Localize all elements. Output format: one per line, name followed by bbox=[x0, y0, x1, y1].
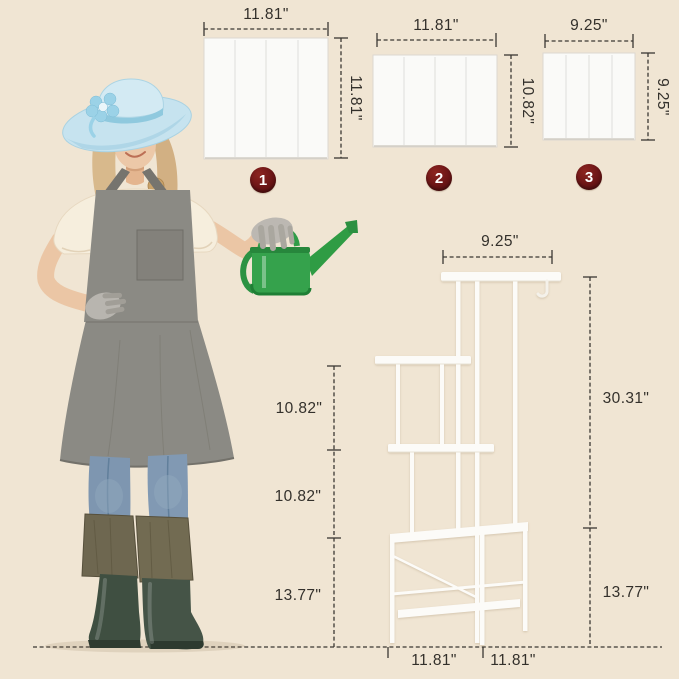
panel1-number-badge: 1 bbox=[250, 167, 276, 193]
panel1-height-label: 11.81" bbox=[346, 75, 364, 121]
product-dimension-diagram: 11.81" 11.81" 11.81" 10.82" 9.25" 9.25" … bbox=[0, 0, 679, 679]
panel-2-board bbox=[373, 55, 497, 147]
ground-shadow bbox=[45, 640, 245, 653]
stand-shelf-gap-2-label: 10.82" bbox=[275, 488, 322, 506]
panel2-number-badge: 2 bbox=[426, 165, 452, 191]
panel3-number-badge: 3 bbox=[576, 164, 602, 190]
boot-cuffs bbox=[82, 514, 193, 582]
stand-base-depth-label: 11.81" bbox=[411, 652, 457, 670]
stand-base-height-left-label: 13.77" bbox=[275, 587, 322, 605]
panel1-width-label: 11.81" bbox=[243, 6, 289, 24]
panel-1-board bbox=[204, 38, 328, 159]
panel-3-board bbox=[543, 53, 635, 140]
panel2-width-label: 11.81" bbox=[413, 17, 459, 35]
stand-shelf-gap-1-label: 10.82" bbox=[276, 400, 323, 418]
stand-top-width-label: 9.25" bbox=[481, 233, 519, 251]
rain-boots bbox=[88, 574, 204, 649]
diagram-graphics bbox=[0, 0, 679, 679]
sun-hat-icon bbox=[59, 79, 196, 160]
stand-base-width-label: 11.81" bbox=[490, 652, 536, 670]
panel3-height-label: 9.25" bbox=[653, 78, 671, 116]
stand-base-height-right-label: 13.77" bbox=[603, 584, 650, 602]
panel2-height-label: 10.82" bbox=[518, 78, 536, 125]
stand-upper-height-label: 30.31" bbox=[603, 390, 650, 408]
plant-stand bbox=[375, 272, 561, 645]
panel3-width-label: 9.25" bbox=[570, 17, 608, 35]
woman-illustration bbox=[45, 79, 358, 653]
